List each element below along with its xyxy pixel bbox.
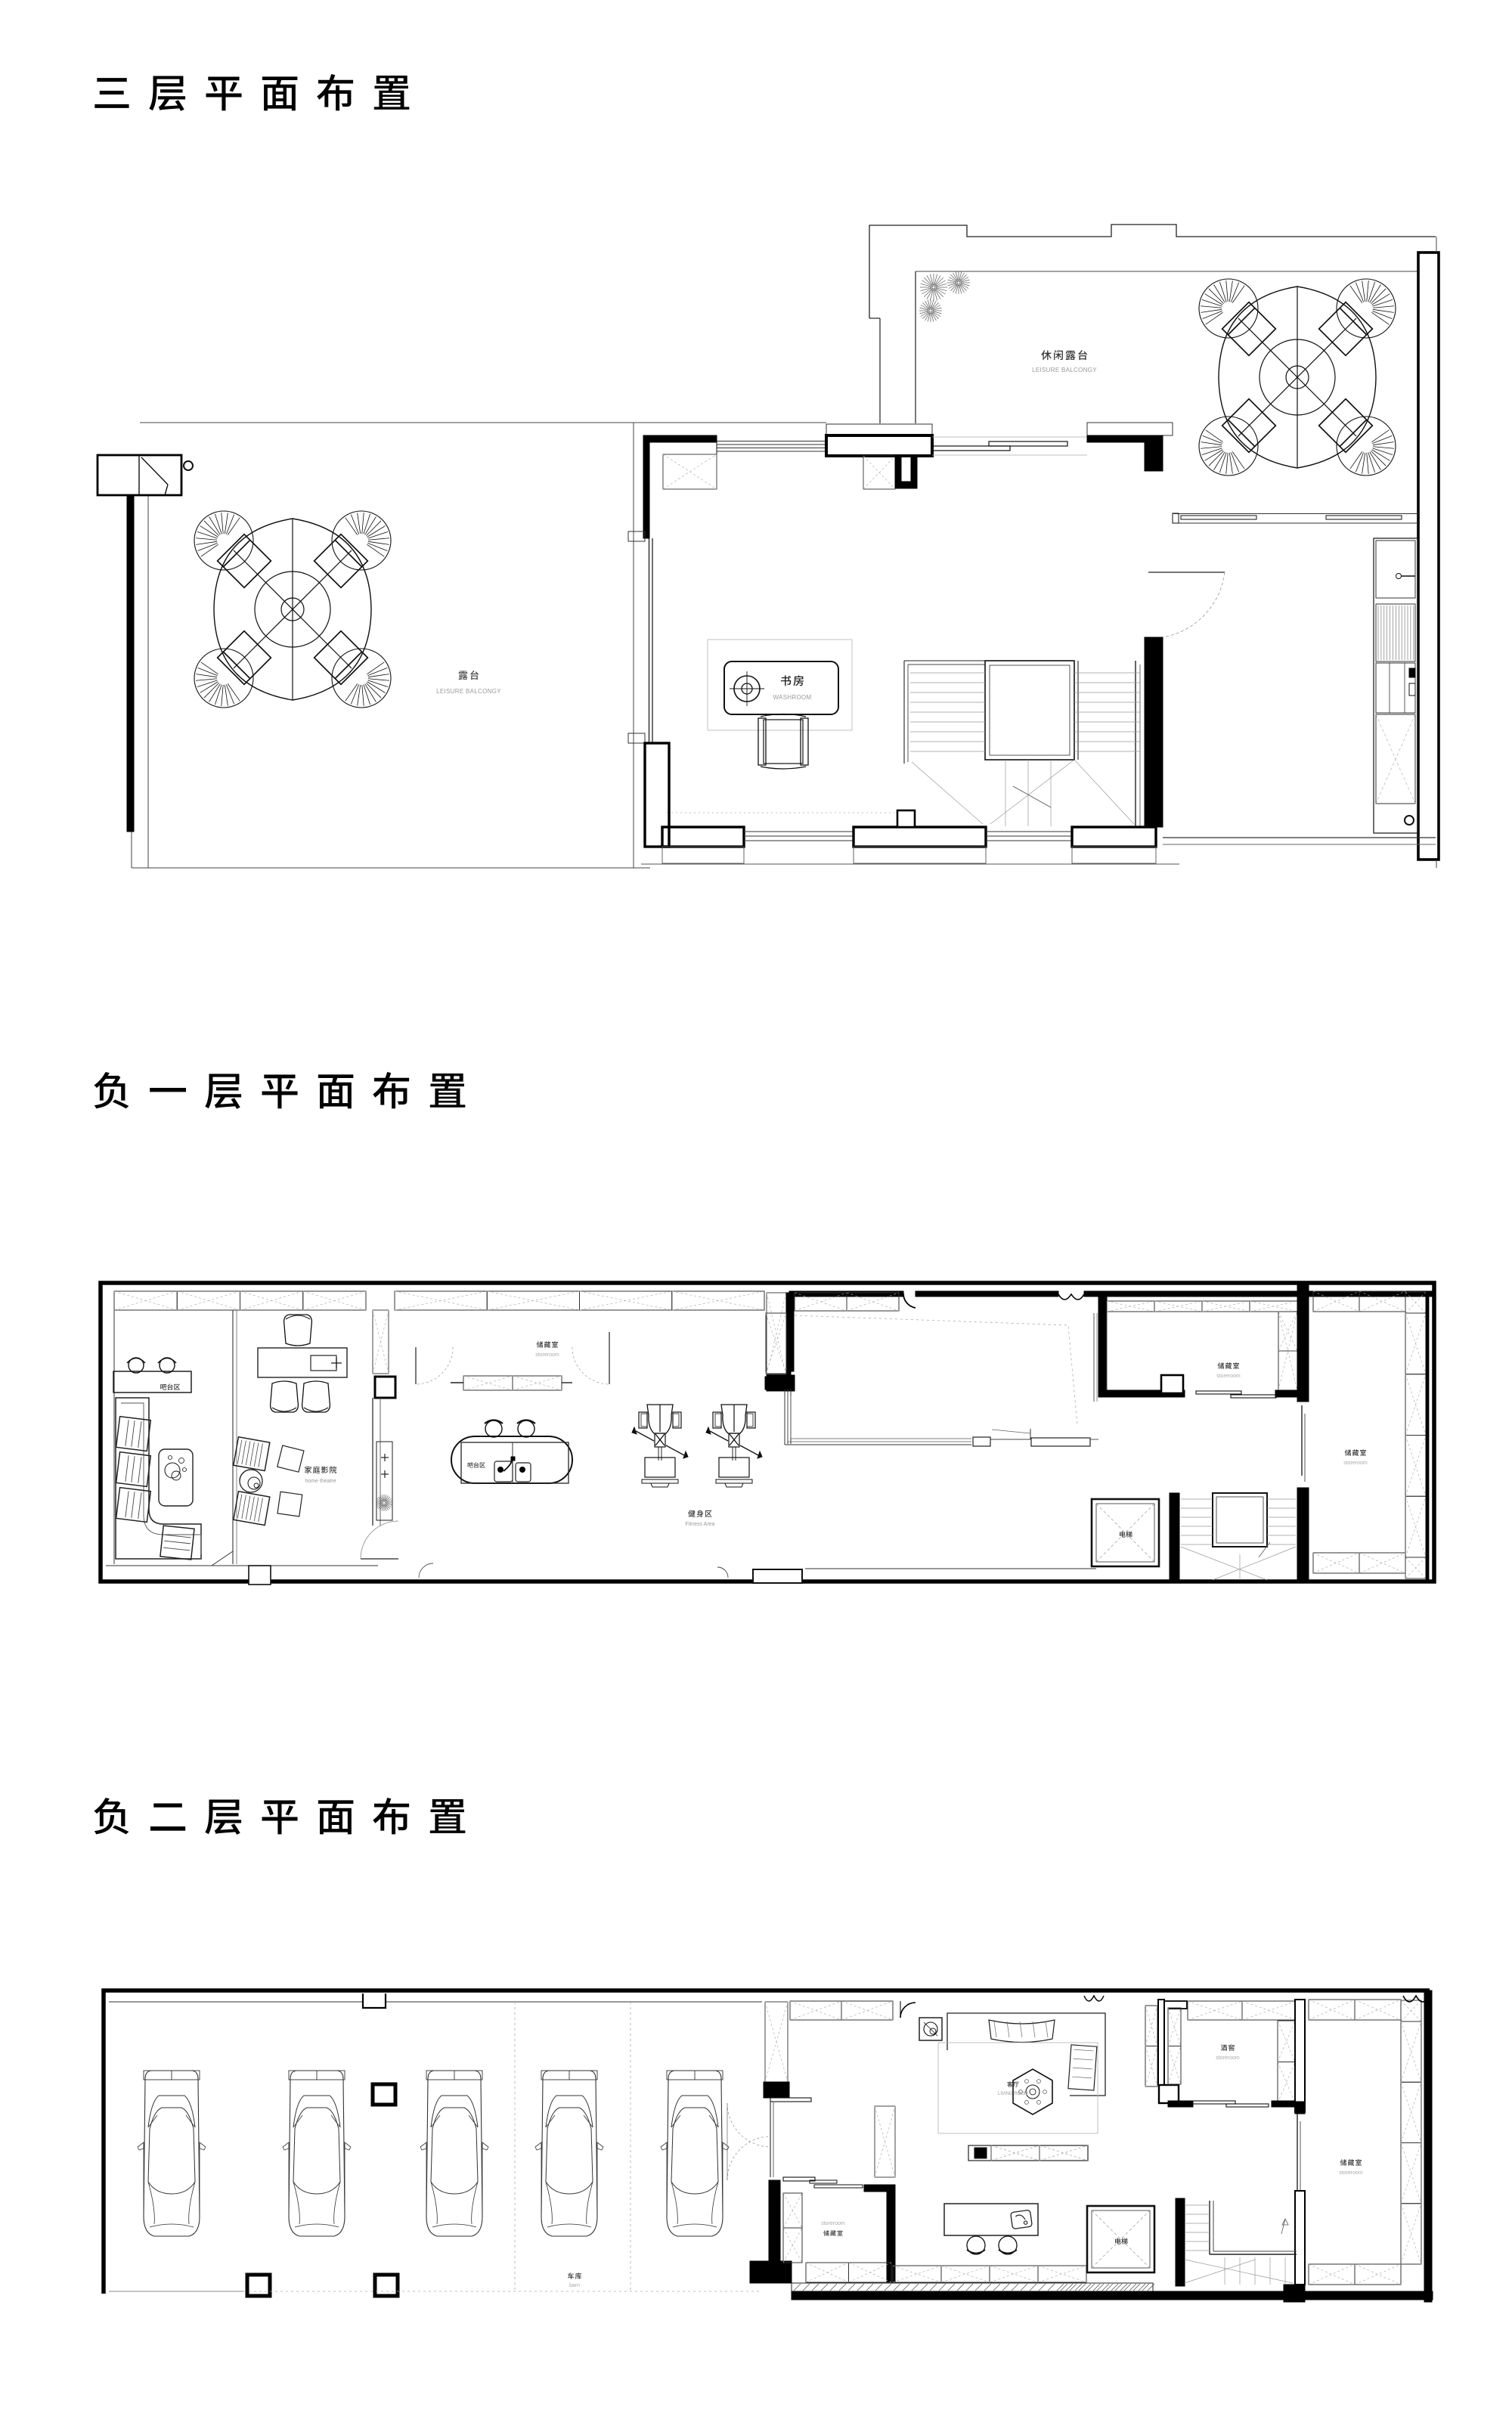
- svg-text:storeroom: storeroom: [821, 2221, 845, 2226]
- svg-text:storeroom: storeroom: [1343, 1461, 1368, 1466]
- svg-text:WASHROOM: WASHROOM: [773, 694, 812, 701]
- svg-text:LIVING ROOM: LIVING ROOM: [998, 2092, 1028, 2096]
- svg-text:LEISURE BALCONGY: LEISURE BALCONGY: [1032, 367, 1097, 373]
- svg-text:home theatre: home theatre: [305, 1479, 336, 1484]
- svg-text:storeroom: storeroom: [535, 1352, 559, 1358]
- svg-text:barn: barn: [569, 2283, 580, 2288]
- svg-text:storeroom: storeroom: [1216, 1374, 1241, 1379]
- svg-text:storeroom: storeroom: [1216, 2055, 1240, 2061]
- svg-text:Fitness Area: Fitness Area: [686, 1522, 715, 1527]
- svg-text:LEISURE BALCONGY: LEISURE BALCONGY: [436, 688, 501, 695]
- svg-text:storeroom: storeroom: [1339, 2170, 1363, 2176]
